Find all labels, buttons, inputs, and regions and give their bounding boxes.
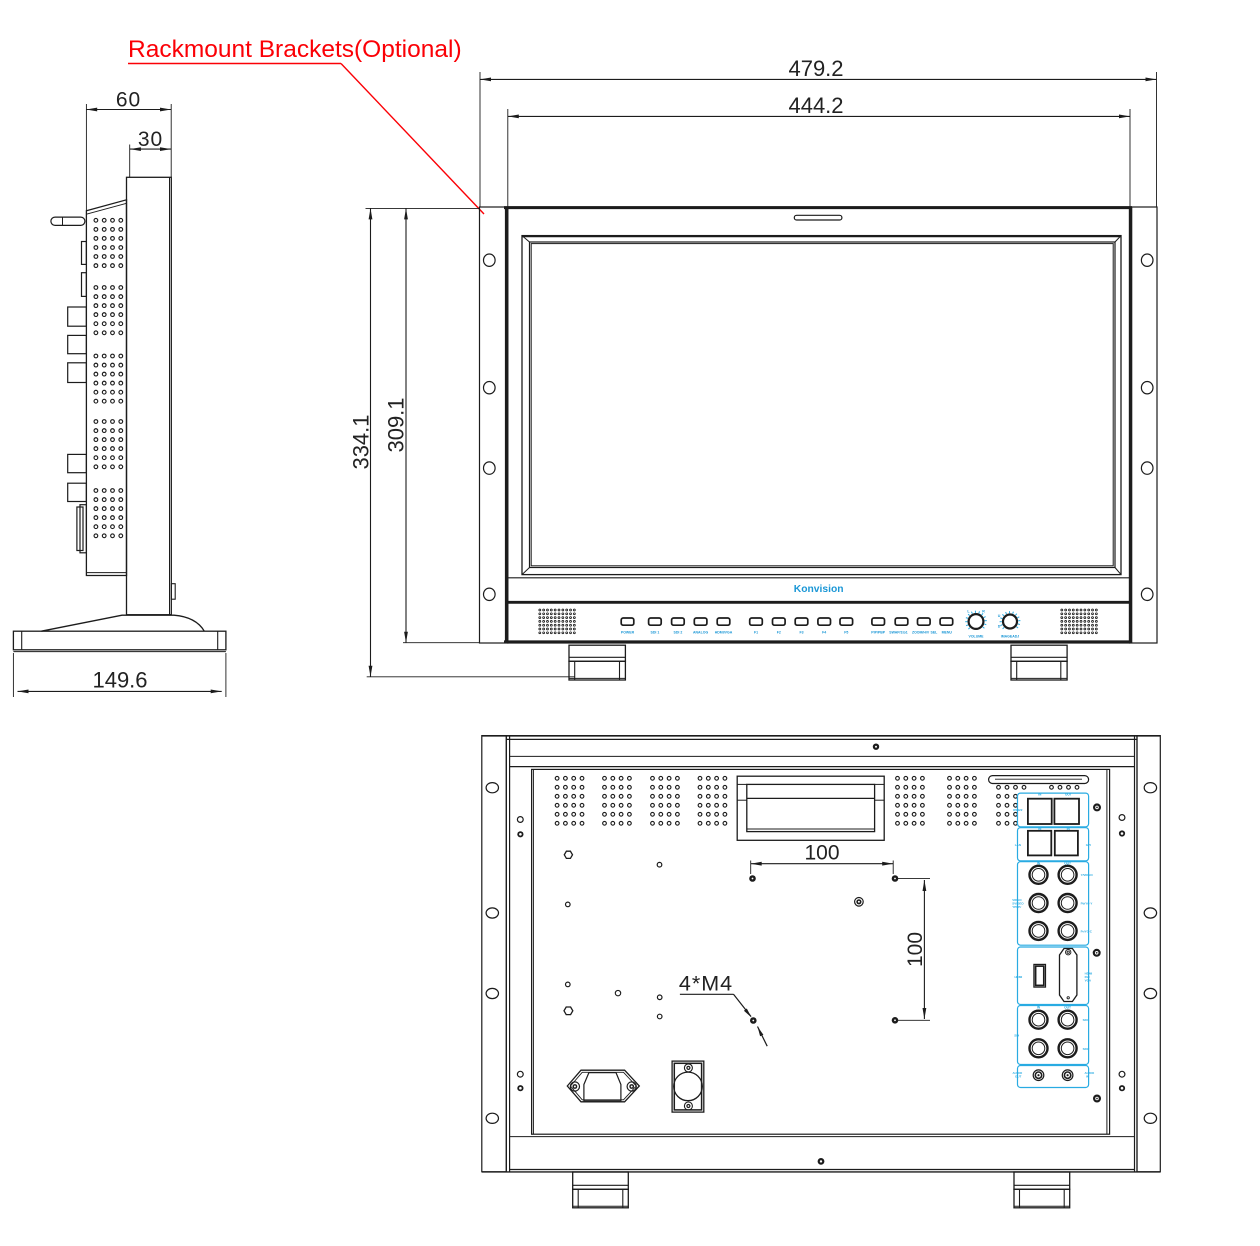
svg-text:VGA: VGA (1085, 979, 1092, 983)
svg-text:SEL: SEL (930, 631, 938, 635)
svg-text:D: D (998, 625, 1001, 629)
svg-text:100: 100 (904, 932, 927, 967)
svg-text:SDI: SDI (1014, 1034, 1019, 1038)
svg-text:VOLUME: VOLUME (969, 635, 985, 639)
svg-text:ZOOM/H/V: ZOOM/H/V (912, 631, 930, 635)
svg-text:ANALOG: ANALOG (693, 631, 708, 635)
svg-text:F2: F2 (777, 631, 781, 635)
svg-text:LAN: LAN (1015, 843, 1021, 847)
svg-text:YPbPr: YPbPr (1012, 905, 1022, 909)
svg-text:309.1: 309.1 (384, 397, 409, 452)
svg-text:SDI1: SDI1 (1083, 1018, 1090, 1022)
svg-text:PIP/PBP: PIP/PBP (871, 631, 885, 635)
svg-text:SWAP/1to1: SWAP/1to1 (889, 631, 908, 635)
svg-text:F5: F5 (844, 631, 848, 635)
svg-text:OUT: OUT (1064, 1006, 1071, 1010)
svg-text:334.1: 334.1 (349, 414, 374, 469)
svg-text:POWER: POWER (621, 631, 635, 635)
svg-text:HDMI/VGA: HDMI/VGA (715, 631, 733, 635)
svg-text:Pb/YC-Y: Pb/YC-Y (1081, 901, 1093, 905)
svg-text:Pr/YC-C: Pr/YC-C (1081, 929, 1093, 933)
svg-text:SDI 1: SDI 1 (651, 631, 660, 635)
svg-text:149.6: 149.6 (92, 668, 147, 693)
svg-text:F4: F4 (822, 631, 826, 635)
svg-text:OUT: OUT (1065, 793, 1072, 797)
svg-text:444.2: 444.2 (788, 93, 843, 118)
svg-text:4*M4: 4*M4 (679, 972, 733, 996)
svg-text:GPI: GPI (1086, 843, 1091, 847)
svg-text:Rackmount Brackets(Optional): Rackmount Brackets(Optional) (128, 36, 462, 63)
svg-text:SDI 2: SDI 2 (674, 631, 683, 635)
svg-text:R: R (982, 610, 985, 614)
svg-text:U: U (998, 614, 1001, 618)
svg-text:F3: F3 (799, 631, 803, 635)
svg-text:60: 60 (116, 89, 141, 112)
svg-text:479.2: 479.2 (788, 56, 843, 81)
svg-text:Konvision: Konvision (794, 584, 844, 595)
svg-text:100: 100 (804, 842, 839, 865)
svg-text:IMAGEADJ: IMAGEADJ (1001, 635, 1020, 639)
svg-text:HDMI: HDMI (1015, 975, 1023, 979)
svg-text:OUT: OUT (1015, 1074, 1022, 1078)
svg-text:F1: F1 (754, 631, 758, 635)
svg-text:RS422: RS422 (1013, 808, 1023, 812)
svg-text:MENU: MENU (942, 631, 953, 635)
svg-text:30: 30 (138, 128, 163, 151)
svg-text:Y/VIDEO: Y/VIDEO (1081, 873, 1094, 877)
svg-text:IN: IN (1086, 1074, 1089, 1078)
svg-text:SDI2: SDI2 (1083, 1047, 1090, 1051)
